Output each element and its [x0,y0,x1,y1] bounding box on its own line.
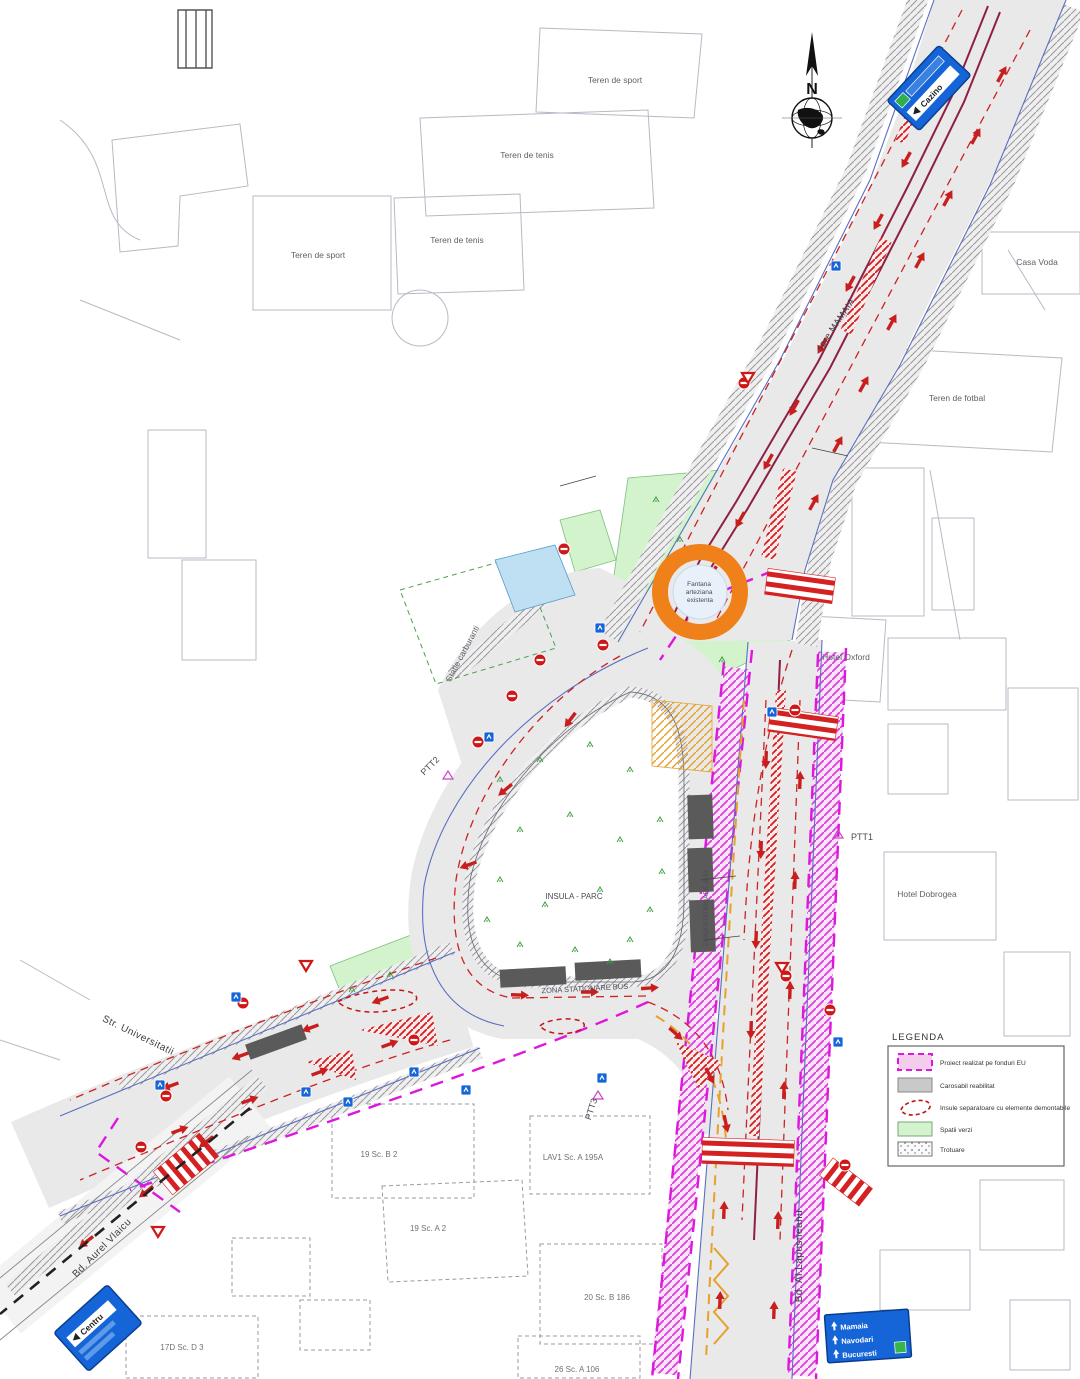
legend-title: LEGENDA [892,1032,944,1043]
legend-swatch-eu-project [898,1054,932,1070]
north-compass: N [782,32,842,148]
label-ptt2: PTT2 [419,755,442,778]
sign-bottom-left: Centru [54,1285,142,1372]
green-route-patch [894,1341,906,1353]
traffic-plan-canvas: Fantana arteziana existenta N Cazino Cen… [0,0,1080,1379]
legend-item-carriageway: Carosabil reabilitat [940,1083,995,1090]
sign-bottom-right: Mamaia Navodari Bucuresti [824,1309,911,1363]
legend-item-green: Spatii verzi [940,1127,973,1134]
label-ptt3: PTT3 [583,1097,599,1121]
label-block-19b: 19 Sc. B 2 [361,1150,398,1159]
label-teren-sport-left: Teren de sport [291,250,346,260]
legend-swatch-carriageway [898,1078,932,1092]
label-teren-tenis-mid: Teren de tenis [430,235,483,245]
label-teren-fotbal: Teren de fotbal [929,393,985,403]
plan-drawing: Fantana arteziana existenta N Cazino Cen… [0,0,1080,1379]
legend-item-sidewalk: Trotuare [940,1147,965,1154]
green-strip-mid [560,510,616,572]
fountain-label-line3: existenta [687,597,713,604]
label-zona-stationare-bus-vertical: ZONA STATIONARE BUS [703,870,710,946]
north-label: N [806,81,818,98]
globe-icon [782,98,842,138]
legend-swatch-green [898,1122,932,1136]
label-insula-parc: INSULA - PARC [545,892,602,901]
label-block-26a: 26 Sc. A 106 [555,1365,600,1374]
label-teren-sport-top: Teren de sport [588,75,643,85]
label-block-19a: 19 Sc. A 2 [410,1224,447,1233]
label-block-17d: 17D Sc. D 3 [160,1343,204,1352]
svg-text:Fantana arteziana exis: Fantana arteziana existenta [686,581,715,604]
label-teren-tenis-top: Teren de tenis [500,150,553,160]
label-hotel-dobrogea: Hotel Dobrogea [897,889,957,899]
label-block-20b: 20 Sc. B 186 [584,1293,630,1302]
label-ptt1: PTT1 [851,832,873,842]
legend-item-islands: Insule separatoare cu elemente demontabi… [940,1105,1070,1112]
pier-structure [178,10,212,68]
legend: LEGENDA Proiect realizat pe fonduri EU C… [888,1032,1070,1166]
label-hotel-oxford: Hotel Oxford [822,652,870,662]
label-bd-al-lapusneanu: Bd. Al.Lapusneanu [794,1210,805,1302]
fountain-label-line1: Fantana [687,581,711,588]
legend-swatch-sidewalk [898,1142,932,1156]
label-casa-voda: Casa Voda [1016,257,1058,267]
label-str-universitatii: Str. Universitatii [100,1014,175,1058]
fountain-label-line2: arteziana [686,589,713,596]
legend-item-eu-project: Proiect realizat pe fonduri EU [940,1060,1026,1067]
label-block-lav1: LAV1 Sc. A 195A [543,1153,604,1162]
